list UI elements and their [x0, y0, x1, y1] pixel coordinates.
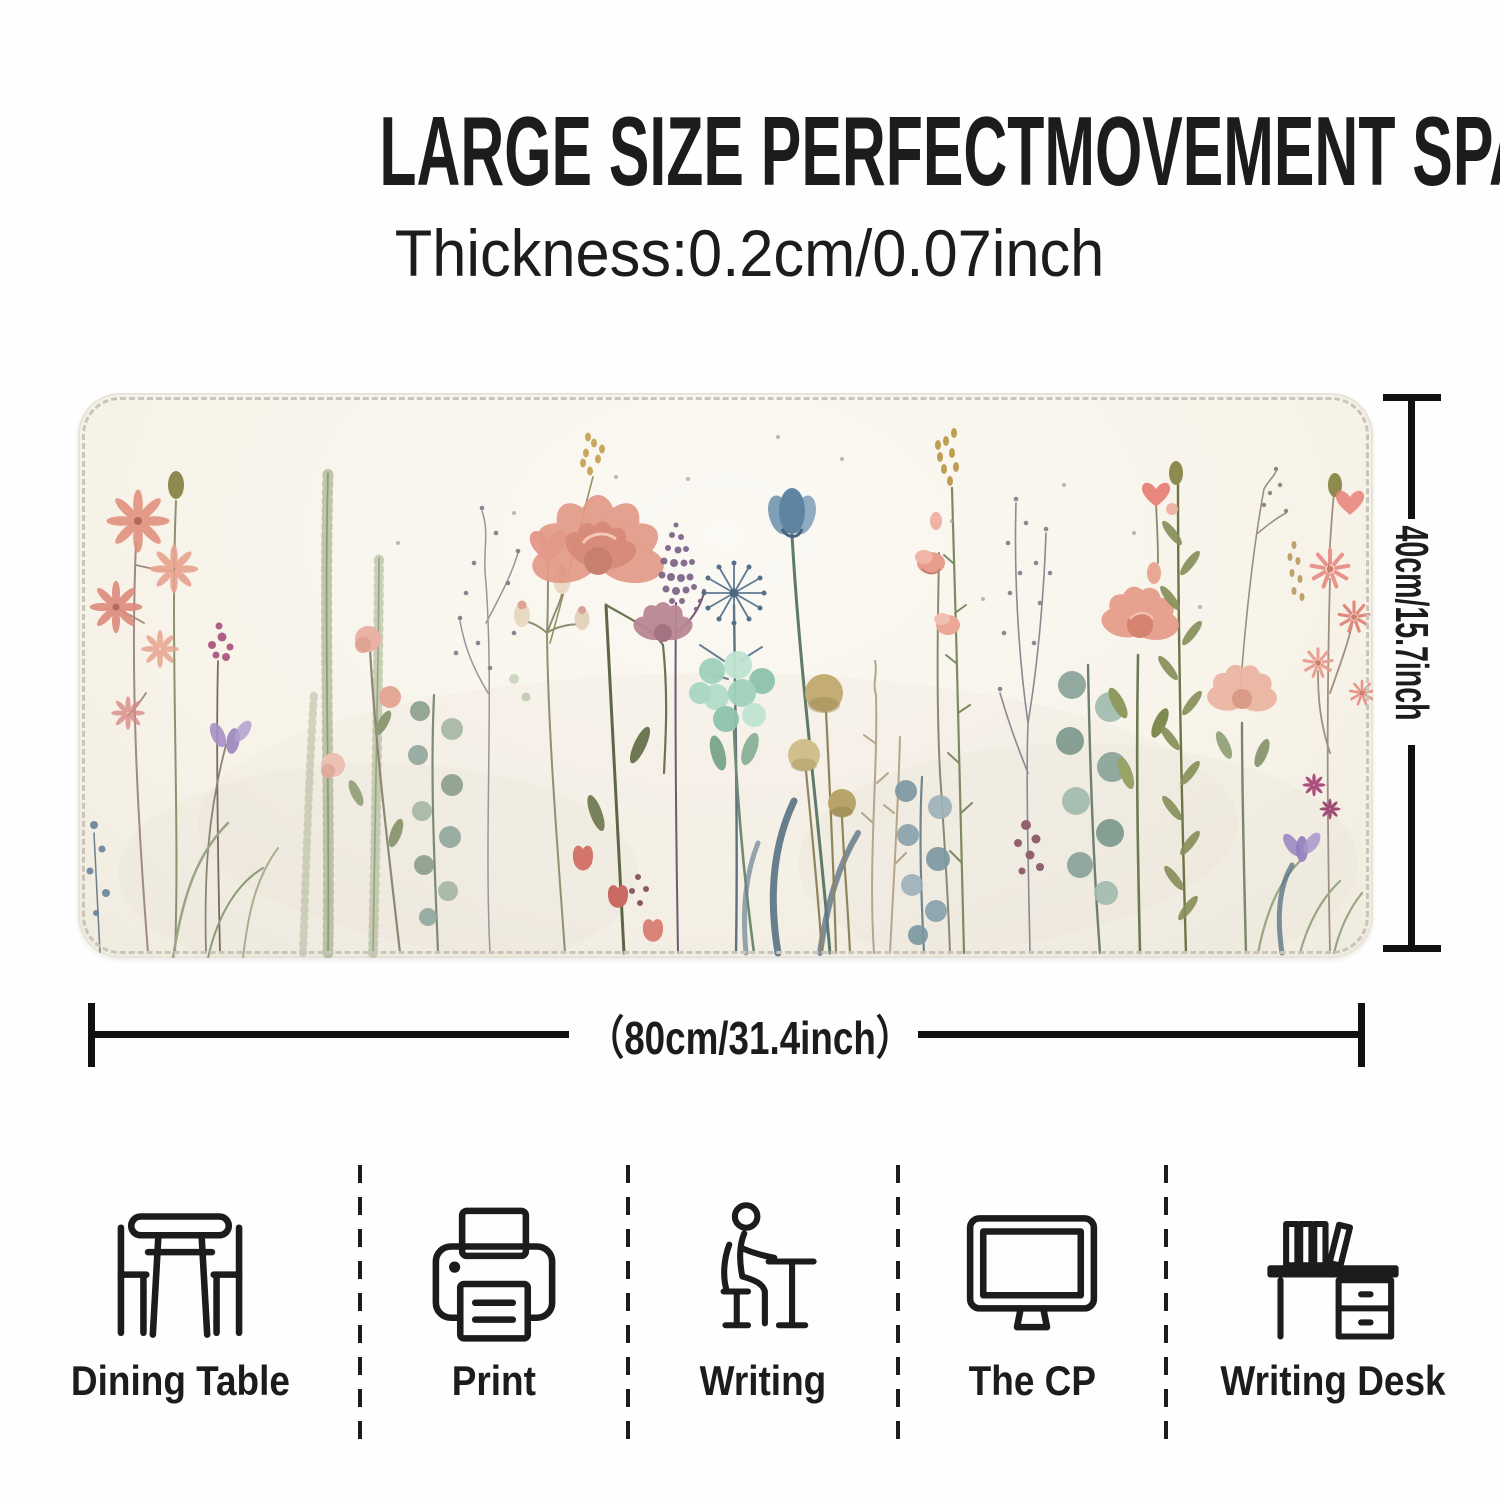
monitor-icon: [952, 1193, 1112, 1345]
use-case-section: Dining Table Print: [0, 1165, 1500, 1445]
use-case-writing: Writing: [628, 1165, 898, 1445]
desk-mat: [78, 393, 1373, 958]
use-case-dining-table: Dining Table: [0, 1165, 360, 1445]
use-case-writing-desk: Writing Desk: [1166, 1165, 1500, 1445]
height-dimension-line: [1408, 401, 1415, 519]
floral-artwork: [78, 393, 1373, 958]
use-case-label: The CP: [968, 1357, 1095, 1405]
height-dimension-label: 40cm/15.7inch: [1385, 525, 1439, 720]
printer-icon: [419, 1193, 569, 1345]
writing-icon: [688, 1193, 838, 1345]
height-dimension-bottom-cap: [1383, 945, 1441, 952]
page-title: LARGE SIZE PERFECTMOVEMENT SPACE: [0, 102, 1500, 200]
width-dimension-label: （80cm/31.4inch）: [587, 1002, 912, 1068]
use-case-label: Dining Table: [70, 1357, 289, 1405]
product-infographic: { "header": { "title": "LARGE SIZE PERFE…: [0, 0, 1500, 1500]
use-case-print: Print: [360, 1165, 628, 1445]
width-dimension-line: [95, 1031, 569, 1038]
page-subtitle: Thickness:0.2cm/0.07inch: [0, 220, 1500, 286]
use-case-label: Print: [452, 1357, 536, 1405]
height-dimension-line: [1408, 745, 1415, 945]
width-dimension-line: [918, 1031, 1358, 1038]
writing-desk-icon: [1248, 1193, 1418, 1345]
use-case-the-cp: The CP: [898, 1165, 1166, 1445]
width-dimension-left-cap: [88, 1003, 95, 1067]
height-dimension-top-cap: [1383, 394, 1441, 401]
width-dimension-right-cap: [1358, 1003, 1365, 1067]
dining-table-icon: [94, 1193, 266, 1345]
use-case-label: Writing: [700, 1357, 827, 1405]
use-case-label: Writing Desk: [1220, 1357, 1445, 1405]
height-dimension: 40cm/15.7inch: [1383, 394, 1441, 952]
width-dimension: （80cm/31.4inch）: [88, 1003, 1365, 1067]
